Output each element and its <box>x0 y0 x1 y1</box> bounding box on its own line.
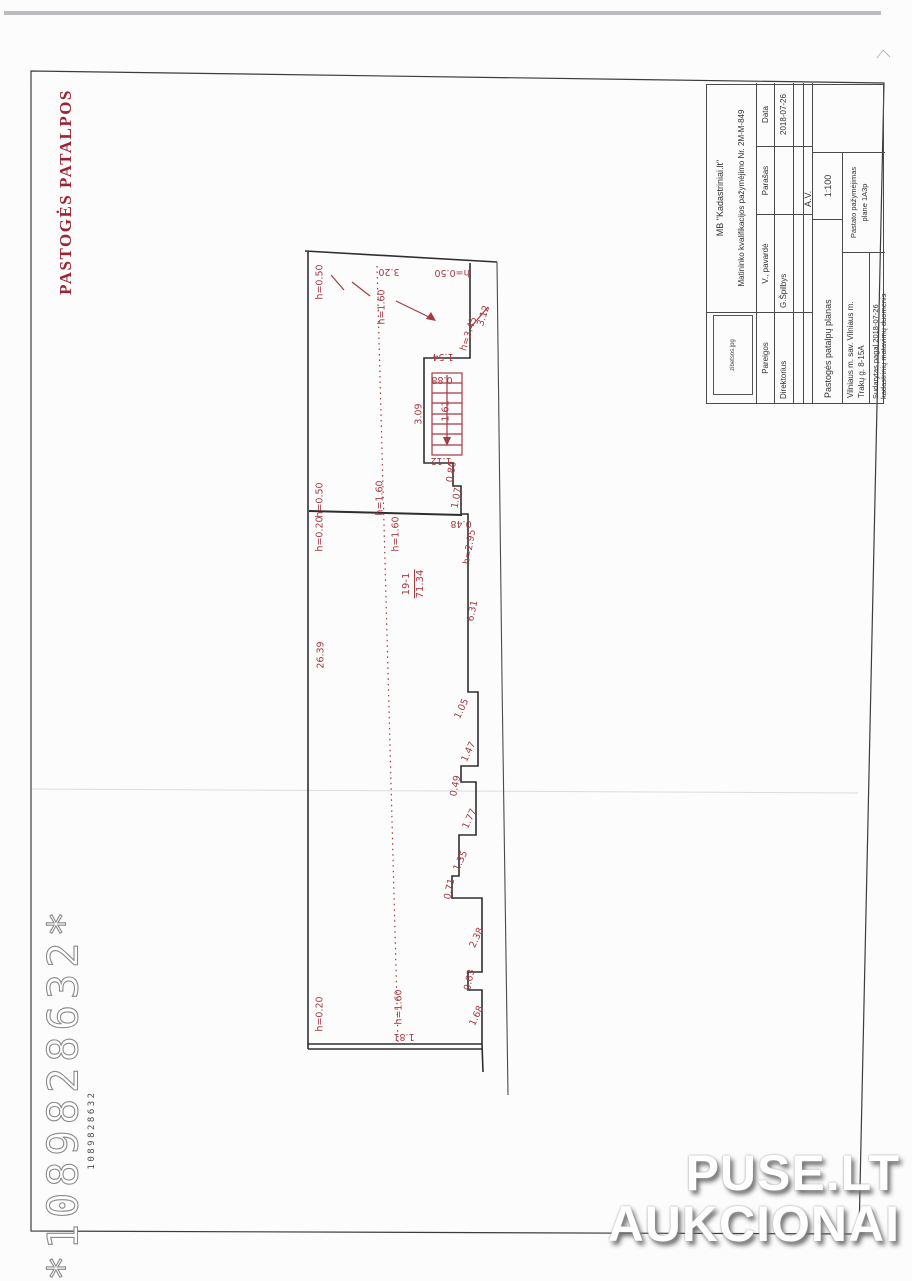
col-header-pavarde: V., pavardė <box>761 215 770 312</box>
dimension-label: h=0.20 <box>315 516 325 551</box>
dimension-label: 0.48 <box>450 518 471 528</box>
scale-value: 1:100 <box>823 153 833 219</box>
tb-grid-line <box>812 219 842 220</box>
basis-line2: kadastrinių matavimų duomenis <box>879 294 888 399</box>
dimension-label: h=0.20 <box>315 996 325 1031</box>
building-designation-code: plane 1A3p <box>860 153 869 252</box>
tb-grid-line <box>803 83 804 403</box>
surveyor-name: G.Špilbys <box>779 274 788 308</box>
date-value: 2018-07-26 <box>779 83 788 146</box>
room-label: 19-1 71.34 <box>401 570 427 599</box>
check-mark-artifact <box>877 50 890 58</box>
dimension-label: 1.61 <box>441 400 451 421</box>
dimension-label: 3.20 <box>378 266 399 276</box>
scanned-floor-plan-page: { "page": { "title_vertical": "PASTOGĖS … <box>0 0 912 1280</box>
dimension-label: h=0.50 <box>434 267 469 277</box>
qualification-certificate: Matininko kvalifikacijos pažymėjimo Nr. … <box>737 83 746 313</box>
plan-name: Pastogės patalpų planas <box>823 299 833 398</box>
watermark-line1: PUSE.LT <box>608 1148 900 1199</box>
stamp-place: A.V. <box>803 191 813 207</box>
tb-grid-line <box>869 253 870 403</box>
dimension-label: h=0.50 <box>315 482 325 517</box>
watermark-line2: AUKCIONAI <box>608 1199 900 1250</box>
barcode-number-large: *1089828632* <box>39 905 88 1280</box>
dimension-label: h=1.60 <box>377 289 387 324</box>
col-header-pareigos: Pareigos <box>761 313 770 403</box>
height-boundary-dotted-line <box>377 266 398 1042</box>
company-name: MB "Kadastriniai.lt" <box>715 83 725 313</box>
tb-grid-line <box>842 252 885 253</box>
dimension-label: 26.39 <box>316 641 326 668</box>
slope-arrow-line <box>396 301 433 319</box>
dimension-label: h=1.60 <box>375 480 385 515</box>
room-area: 71.34 <box>415 570 428 599</box>
dimension-label: 1.81 <box>393 1031 414 1041</box>
fold-line-artifact <box>32 789 858 793</box>
tb-grid-line <box>842 153 843 403</box>
dimension-label: 1.54 <box>432 351 453 361</box>
dimension-label: h=1.60 <box>394 989 404 1024</box>
address-line2: Trakų g. 8-15A <box>857 345 866 398</box>
dimension-label: 3.09 <box>414 403 424 424</box>
room-number: 19-1 <box>401 570 415 599</box>
barcode-number-small: 1089828632 <box>87 1090 97 1169</box>
plan-walls <box>305 251 497 1072</box>
dimension-label: h=1.60 <box>391 516 401 551</box>
surveyor-logo: zibetsos.jpg <box>713 315 753 395</box>
position-value: Direktorius <box>779 361 788 399</box>
dimension-label: h=0.50 <box>315 264 325 299</box>
dimension-label: 0.88 <box>431 374 452 384</box>
tb-grid-line <box>812 83 813 403</box>
roof-edge-line <box>497 262 508 1095</box>
tb-grid-line <box>774 83 775 403</box>
page-title: PASTOGĖS PATALPOS <box>56 89 76 295</box>
building-designation-label: Pastato pažymėjimas <box>849 153 858 252</box>
col-header-data: Data <box>761 83 770 146</box>
tb-grid-line <box>756 83 757 403</box>
plan-red-lines <box>331 266 488 1042</box>
tb-grid-line <box>793 83 794 403</box>
title-block: zibetsos.jpg MB "Kadastriniai.lt" Matini… <box>706 84 884 404</box>
col-header-parasas: Parašas <box>761 147 770 214</box>
address-line1: Vilniaus m. sav. Vilniaus m. <box>846 302 855 398</box>
watermark: PUSE.LT AUKCIONAI <box>608 1148 900 1250</box>
